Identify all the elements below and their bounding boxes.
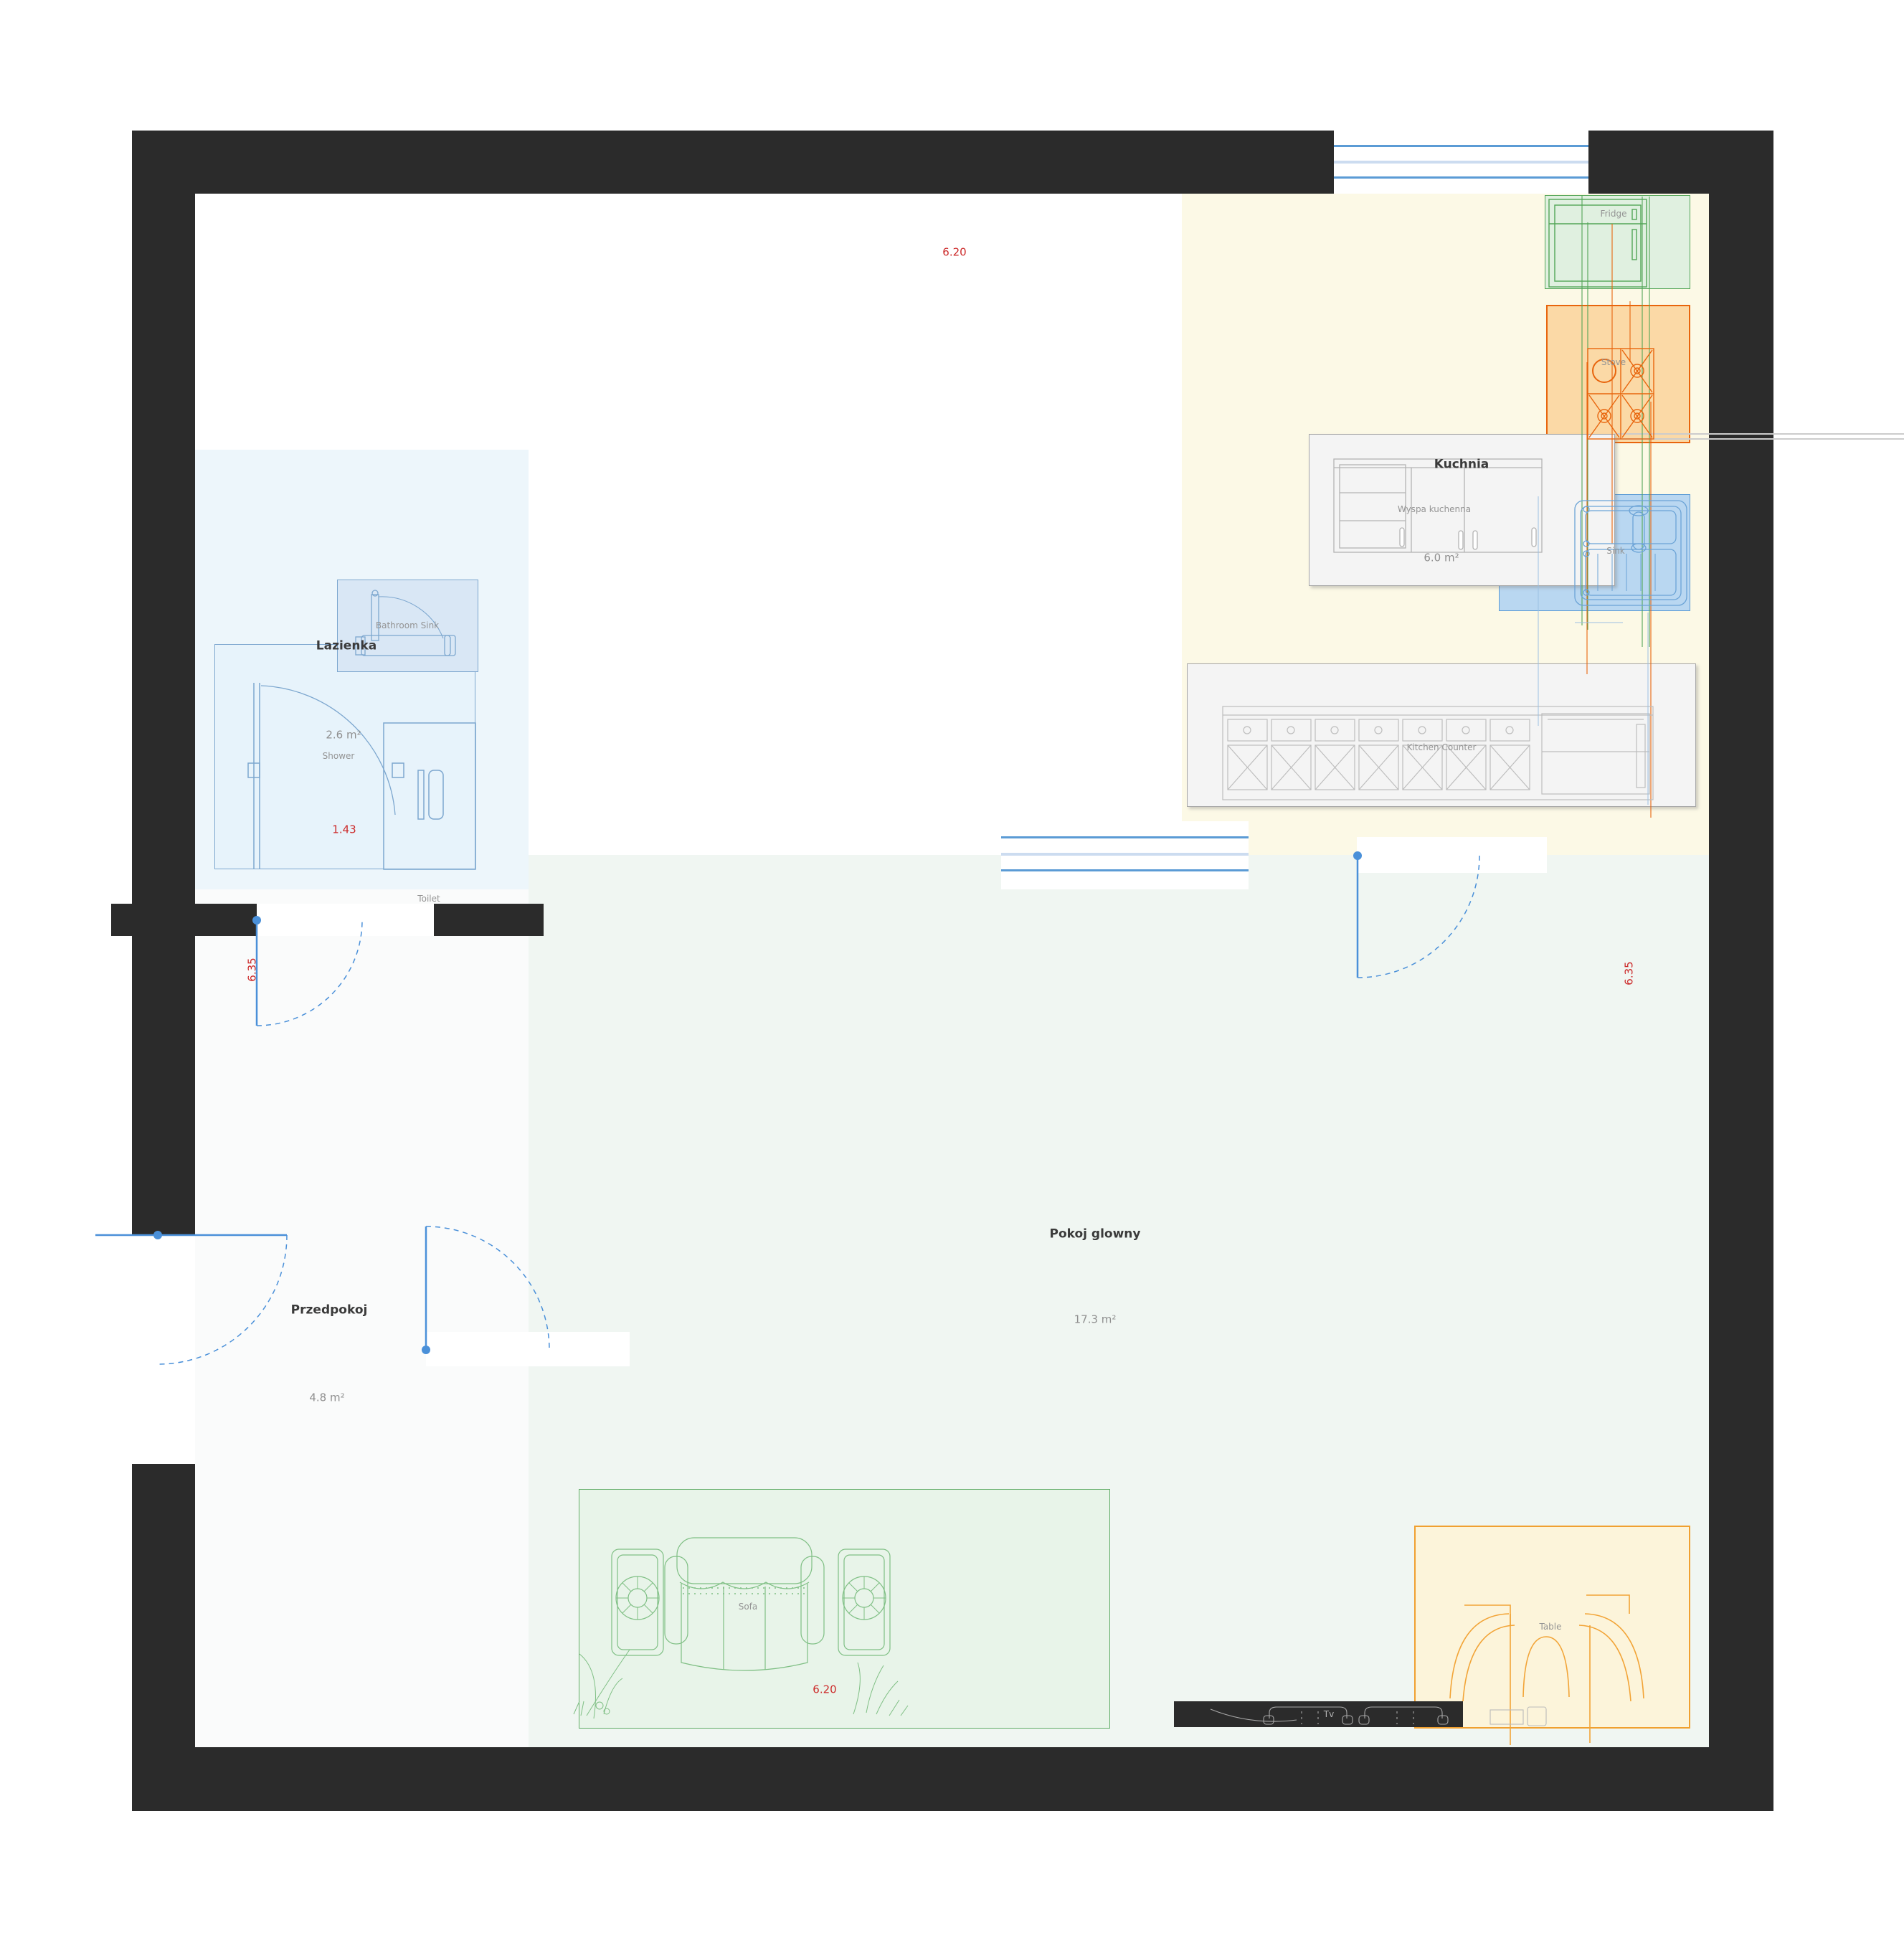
furniture-label-bathroom-sink: Bathroom Sink bbox=[376, 621, 439, 630]
room-label-przedpokoj: Przedpokoj bbox=[291, 1305, 368, 1317]
door-entry-opening bbox=[132, 1235, 195, 1464]
dim-left-height: 6.35 bbox=[247, 958, 258, 981]
dim-sofa-width: 6.20 bbox=[813, 1685, 836, 1696]
floor-hallway bbox=[195, 889, 529, 1747]
furniture-label-sink: Sink bbox=[1606, 547, 1625, 555]
furniture-label-stove: Stove bbox=[1601, 358, 1626, 367]
window-top-line bbox=[1334, 145, 1588, 147]
furniture-label-table: Table bbox=[1539, 1622, 1561, 1631]
furniture-label-sofa: Sofa bbox=[739, 1602, 758, 1611]
dim-shower-width: 1.43 bbox=[332, 825, 356, 836]
window-top-line bbox=[1334, 176, 1588, 179]
furniture-label-kitchen-counter: Kitchen Counter bbox=[1407, 743, 1477, 752]
window-middle-line bbox=[1001, 836, 1249, 838]
room-label-lazienka: Lazienka bbox=[316, 640, 376, 653]
furniture-label-shower: Shower bbox=[323, 752, 355, 760]
door-hall-opening bbox=[426, 1332, 630, 1366]
kitchen-counter-panel bbox=[1187, 663, 1696, 807]
furniture-label-tv: Tv bbox=[1324, 1710, 1334, 1719]
island-label: Wyspa kuchenna bbox=[1398, 505, 1471, 514]
tv-unit bbox=[1174, 1701, 1463, 1727]
room-label-kuchnia: Kuchnia bbox=[1434, 459, 1489, 471]
furniture-label-fridge: Fridge bbox=[1601, 209, 1627, 218]
window-top-line bbox=[1334, 161, 1588, 164]
floor-plan: Lazienka 2.6 m² Shower Toilet Bathroom S… bbox=[0, 0, 1904, 1943]
wall-bottom bbox=[132, 1747, 1773, 1811]
dim-right-height: 6.35 bbox=[1624, 961, 1635, 985]
window-middle-line bbox=[1001, 869, 1249, 871]
door-kitchen-opening bbox=[1357, 837, 1547, 873]
wall-right bbox=[1709, 131, 1773, 1811]
room-label-pokoj-glowny: Pokoj glowny bbox=[1050, 1229, 1141, 1241]
wall-left bbox=[132, 131, 195, 1811]
area-label-kuchnia: 6.0 m² bbox=[1424, 553, 1459, 564]
sofa-zone bbox=[579, 1489, 1110, 1729]
stove bbox=[1546, 305, 1690, 443]
area-label-pokoj-glowny: 17.3 m² bbox=[1074, 1315, 1117, 1325]
area-label-przedpokoj: 4.8 m² bbox=[309, 1393, 344, 1404]
area-label-lazienka: 2.6 m² bbox=[326, 730, 361, 741]
dim-top-width: 6.20 bbox=[942, 247, 966, 258]
furniture-label-toilet: Toilet bbox=[417, 894, 440, 903]
door-bathroom-opening bbox=[257, 904, 434, 936]
window-middle-line bbox=[1001, 853, 1249, 856]
